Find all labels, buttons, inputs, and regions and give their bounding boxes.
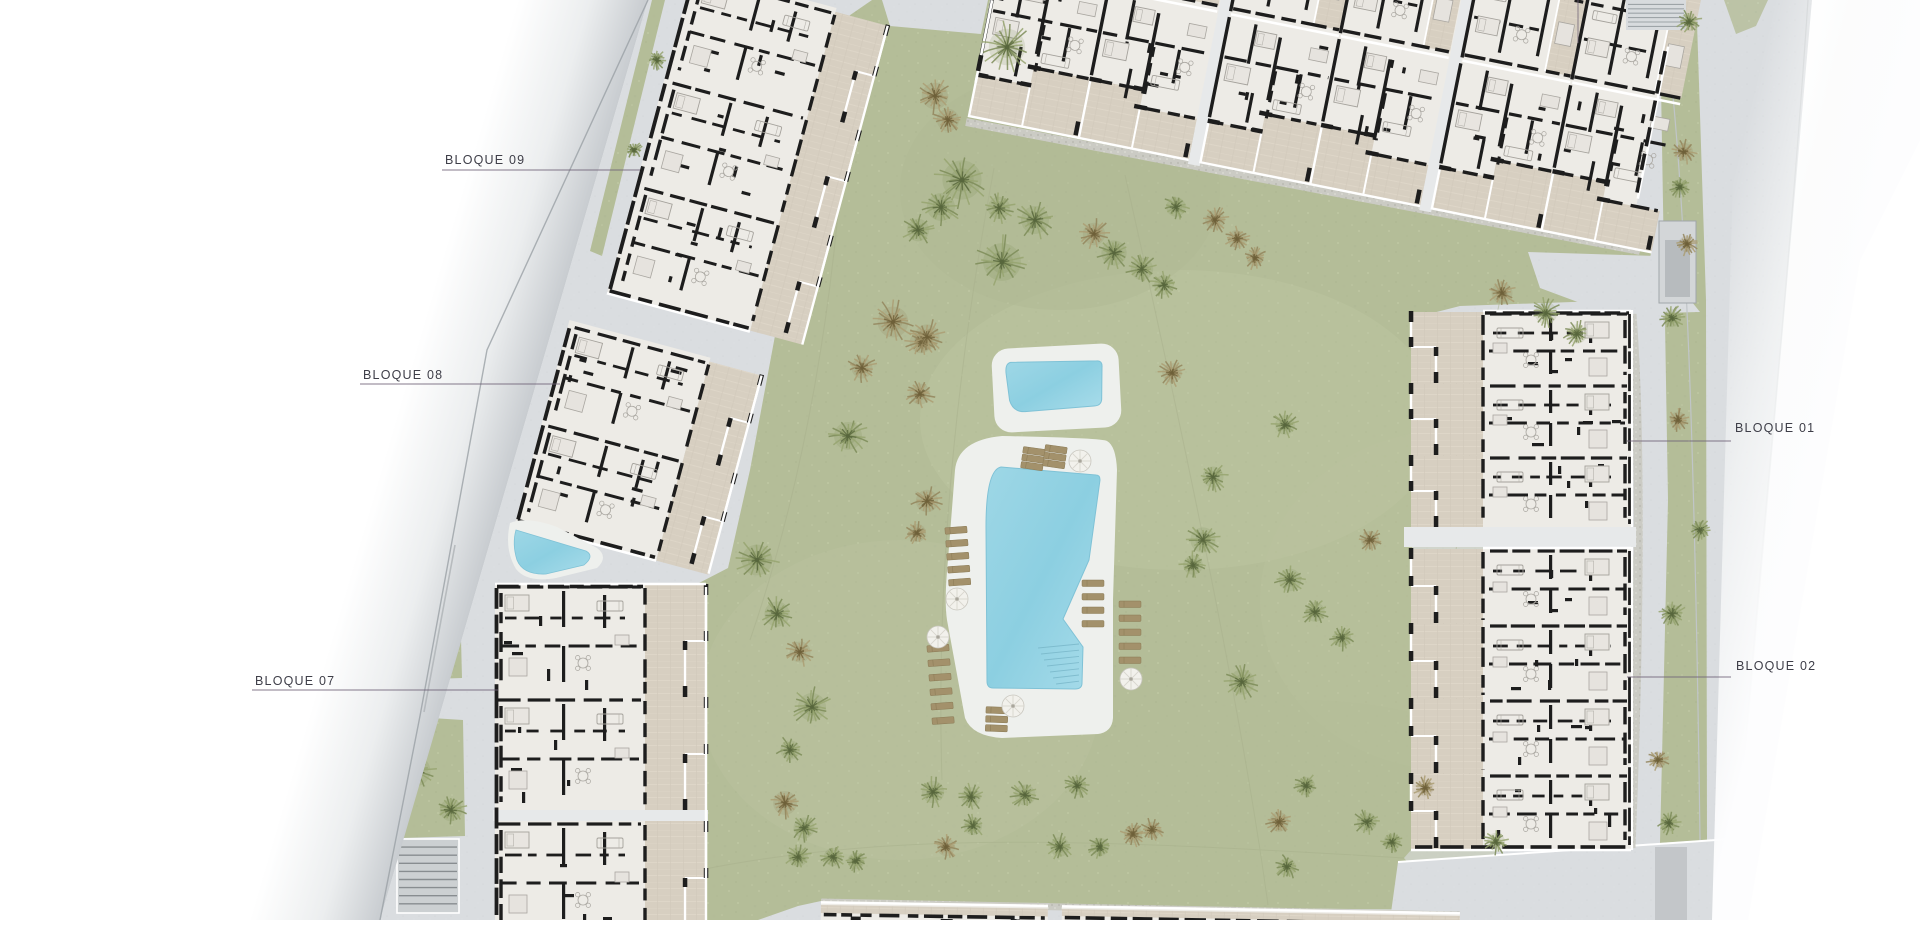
svg-text:BLOQUE 09: BLOQUE 09 <box>445 153 525 167</box>
svg-text:BLOQUE 02: BLOQUE 02 <box>1736 659 1816 673</box>
svg-text:BLOQUE 01: BLOQUE 01 <box>1735 421 1815 435</box>
svg-text:BLOQUE 08: BLOQUE 08 <box>363 368 443 382</box>
svg-text:BLOQUE 07: BLOQUE 07 <box>255 674 335 688</box>
